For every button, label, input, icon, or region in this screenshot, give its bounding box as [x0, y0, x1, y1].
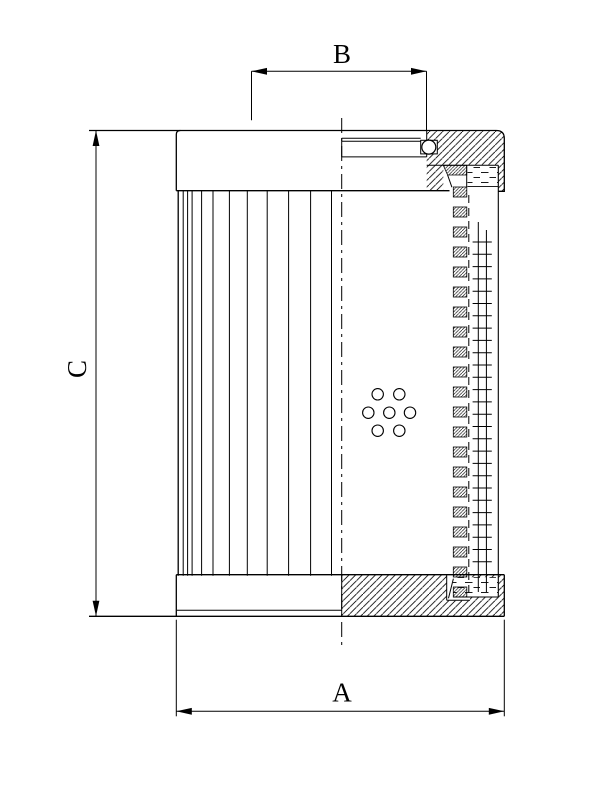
dimension-a-label: A: [332, 678, 352, 708]
core-tube-perforations: [453, 187, 467, 597]
bottom-end-cap: [89, 575, 504, 617]
arrowhead-left-icon: [252, 68, 268, 75]
drawing-sheet: B C A: [0, 0, 612, 792]
filter-element-section-drawing: B C A: [0, 0, 612, 792]
pleated-filter-media: [178, 191, 331, 576]
top-cap-hatch-outer-flange: [498, 165, 504, 191]
dimension-c: C: [62, 131, 99, 617]
dimension-b: B: [252, 39, 427, 131]
dimension-a: A: [176, 620, 504, 717]
arrowhead-right-icon: [489, 708, 505, 715]
o-ring: [422, 140, 436, 154]
dimension-c-label: C: [62, 360, 92, 378]
core-tube-top-collar: [443, 165, 466, 187]
drain-holes: [363, 389, 416, 437]
adhesive-bed-top: [468, 165, 499, 186]
arrowhead-up-icon: [93, 131, 100, 147]
arrowhead-left-icon: [176, 708, 192, 715]
top-cap-hatch-left-leg: [427, 165, 444, 190]
o-ring-seal: [421, 140, 438, 154]
arrowhead-down-icon: [93, 601, 100, 617]
top-cap-hatch-band: [427, 131, 505, 166]
top-end-cap: [89, 131, 504, 192]
support-mesh: [473, 222, 492, 592]
arrowhead-right-icon: [411, 68, 427, 75]
dimension-b-label: B: [333, 39, 351, 69]
